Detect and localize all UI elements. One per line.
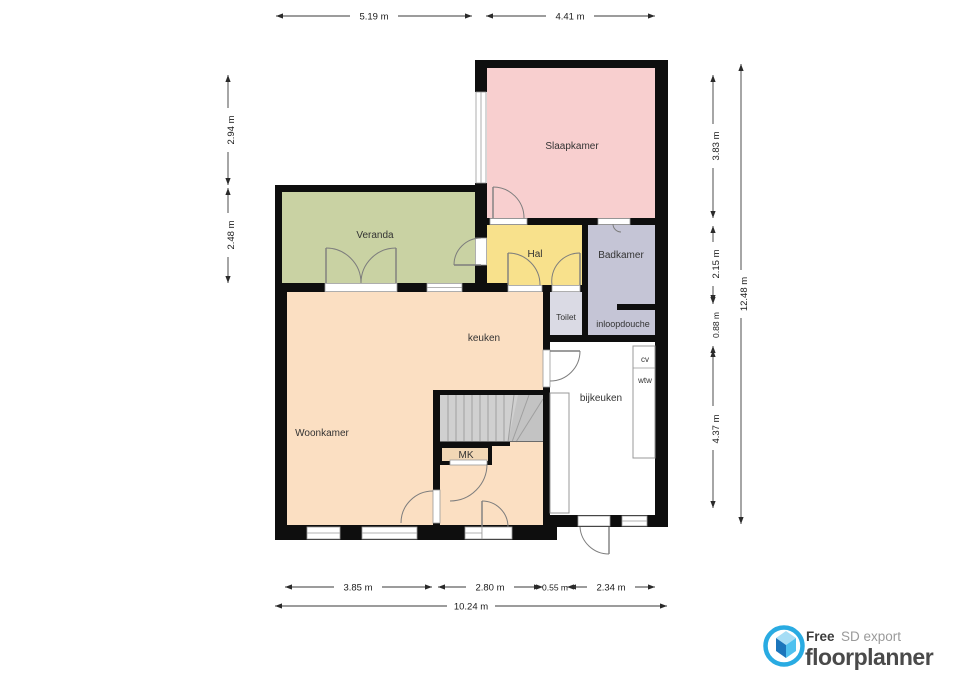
fixture-label-wtw: wtw <box>637 376 652 385</box>
dimension-left-1: 2.94 m <box>226 75 237 185</box>
room-label-slaapkamer: Slaapkamer <box>545 141 599 152</box>
french-door-opening <box>325 284 397 292</box>
svg-text:3.85 m: 3.85 m <box>343 583 372 594</box>
dimension-bottom-3: 0.55 m <box>533 583 577 593</box>
svg-text:0.55 m: 0.55 m <box>542 583 568 593</box>
dimension-bottom-4: 2.34 m <box>567 583 655 594</box>
fixture-label-cv: cv <box>641 355 649 364</box>
staircase <box>440 395 543 442</box>
svg-text:2.80 m: 2.80 m <box>475 583 504 594</box>
dimension-top-2: 4.41 m <box>486 12 655 23</box>
dimension-right-3: 0.88 m <box>711 296 721 354</box>
door-opening <box>476 238 487 265</box>
footer-logo: Free SD export floorplanner <box>766 628 934 671</box>
footer-brand-name: floorplanner <box>805 644 934 670</box>
door-opening <box>433 490 440 523</box>
room-label-veranda: Veranda <box>356 230 394 241</box>
room-label-keuken: keuken <box>468 333 500 344</box>
svg-text:2.94 m: 2.94 m <box>226 115 237 144</box>
svg-text:4.41 m: 4.41 m <box>555 12 584 23</box>
door-opening <box>578 516 610 526</box>
room-label-toilet: Toilet <box>556 312 576 322</box>
svg-text:12.48 m: 12.48 m <box>739 277 750 311</box>
dimension-bottom-total: 10.24 m <box>275 602 667 613</box>
door-opening <box>543 350 550 387</box>
footer-free-label: Free <box>806 629 835 644</box>
door-opening <box>508 286 542 292</box>
svg-text:5.19 m: 5.19 m <box>359 12 388 23</box>
floorplan-canvas: Slaapkamer Veranda Hal Badkamer Toilet i… <box>0 0 960 679</box>
fixture-label-mk: MK <box>459 450 474 461</box>
door-opening <box>490 219 527 225</box>
room-label-inloopdouche: inloopdouche <box>596 319 650 329</box>
svg-text:4.37 m: 4.37 m <box>711 414 722 443</box>
dimension-right-total: 12.48 m <box>739 64 750 524</box>
room-label-hal: Hal <box>527 249 542 260</box>
dimension-right-4: 4.37 m <box>711 350 722 508</box>
svg-text:2.15 m: 2.15 m <box>711 249 722 278</box>
dimension-bottom-2: 2.80 m <box>438 583 543 594</box>
bijkeuken-cabinet <box>550 393 569 513</box>
dimension-right-1: 3.83 m <box>711 75 722 218</box>
dimension-top-1: 5.19 m <box>276 12 472 23</box>
svg-text:2.48 m: 2.48 m <box>226 220 237 249</box>
room-label-woonkamer: Woonkamer <box>295 428 349 439</box>
door-opening <box>598 219 630 225</box>
door-opening <box>482 527 512 539</box>
floorplan-page: Slaapkamer Veranda Hal Badkamer Toilet i… <box>0 0 960 679</box>
svg-text:10.24 m: 10.24 m <box>454 602 488 613</box>
dimension-bottom-1: 3.85 m <box>285 583 432 594</box>
door-opening <box>552 286 580 292</box>
room-label-bijkeuken: bijkeuken <box>580 393 622 404</box>
dimension-left-2: 2.48 m <box>226 188 237 283</box>
footer-export-label: SD export <box>841 629 901 644</box>
svg-text:3.83 m: 3.83 m <box>711 131 722 160</box>
dimension-right-2: 2.15 m <box>711 226 722 302</box>
svg-text:2.34 m: 2.34 m <box>596 583 625 594</box>
room-label-badkamer: Badkamer <box>598 250 644 261</box>
svg-text:0.88 m: 0.88 m <box>711 312 721 338</box>
door-arc <box>580 527 609 554</box>
